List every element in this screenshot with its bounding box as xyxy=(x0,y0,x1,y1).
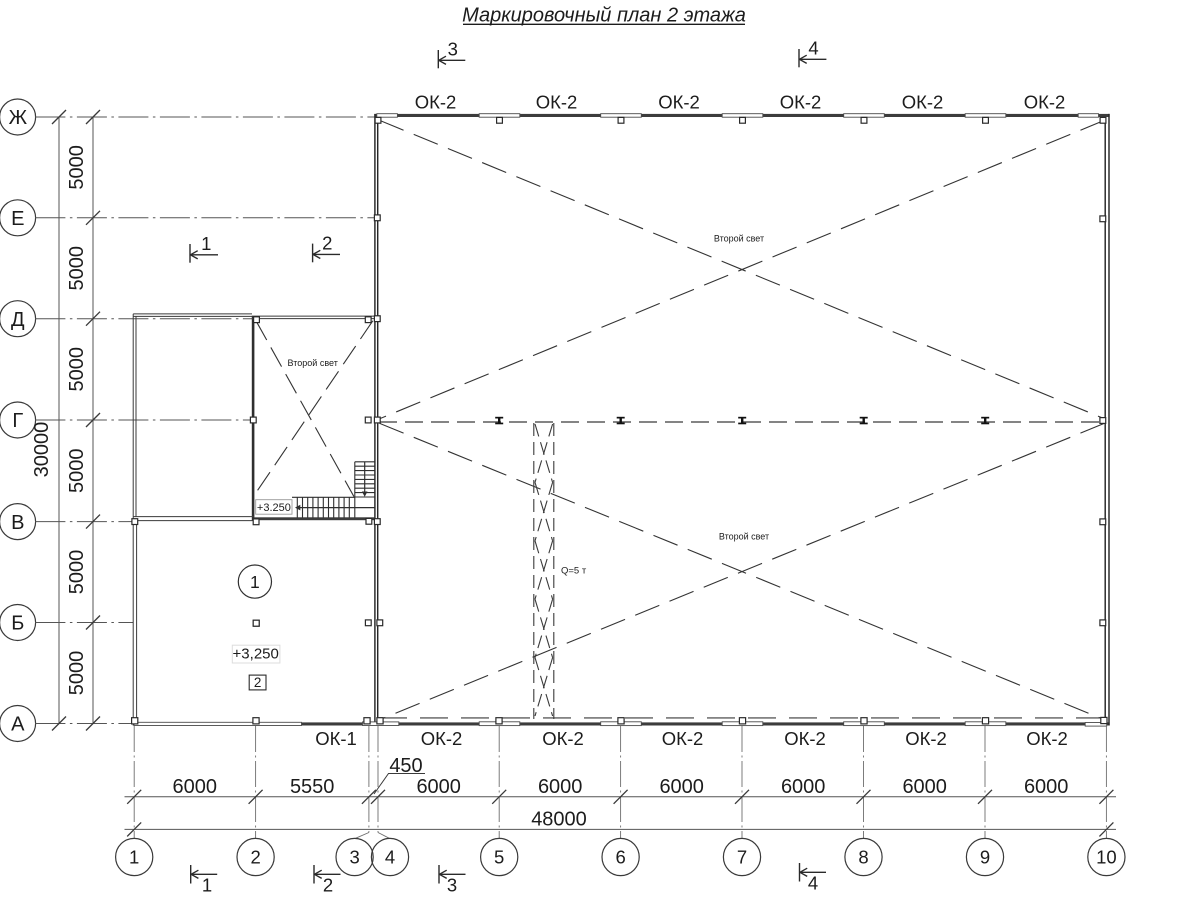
svg-text:ОК-2: ОК-2 xyxy=(902,91,944,112)
svg-text:1: 1 xyxy=(201,233,211,254)
svg-text:В: В xyxy=(11,512,24,534)
svg-text:1: 1 xyxy=(250,572,260,592)
svg-text:7: 7 xyxy=(737,847,747,868)
svg-text:2: 2 xyxy=(254,675,262,690)
svg-text:ОК-1: ОК-1 xyxy=(315,728,357,749)
svg-text:5: 5 xyxy=(494,847,504,868)
svg-text:1: 1 xyxy=(129,847,139,868)
svg-text:5000: 5000 xyxy=(66,347,88,392)
svg-text:3: 3 xyxy=(448,38,458,59)
svg-text:3: 3 xyxy=(447,875,457,896)
svg-text:4: 4 xyxy=(385,847,395,868)
svg-text:ОК-2: ОК-2 xyxy=(1026,728,1068,749)
svg-text:5550: 5550 xyxy=(290,776,335,798)
svg-text:3: 3 xyxy=(349,847,359,868)
svg-text:ОК-2: ОК-2 xyxy=(658,91,700,112)
svg-text:48000: 48000 xyxy=(531,809,587,831)
svg-text:4: 4 xyxy=(808,873,818,894)
svg-text:Б: Б xyxy=(11,613,24,635)
svg-text:10: 10 xyxy=(1096,847,1117,868)
svg-text:Q=5 т: Q=5 т xyxy=(561,566,587,577)
svg-text:30000: 30000 xyxy=(31,422,53,478)
svg-text:5000: 5000 xyxy=(66,145,88,190)
svg-text:5000: 5000 xyxy=(66,449,88,494)
svg-text:2: 2 xyxy=(322,232,332,253)
svg-text:ОК-2: ОК-2 xyxy=(905,728,947,749)
svg-text:1: 1 xyxy=(202,875,212,896)
svg-text:6000: 6000 xyxy=(416,776,461,798)
svg-text:ОК-2: ОК-2 xyxy=(1024,91,1066,112)
svg-text:Д: Д xyxy=(11,309,25,331)
svg-text:6000: 6000 xyxy=(659,776,704,798)
svg-text:8: 8 xyxy=(858,847,868,868)
svg-text:6000: 6000 xyxy=(781,776,826,798)
svg-text:6000: 6000 xyxy=(538,776,583,798)
svg-text:6000: 6000 xyxy=(1024,776,1069,798)
svg-text:ОК-2: ОК-2 xyxy=(662,728,704,749)
svg-text:ОК-2: ОК-2 xyxy=(780,91,822,112)
svg-text:5000: 5000 xyxy=(66,246,88,291)
svg-text:Ж: Ж xyxy=(9,107,28,129)
svg-text:6: 6 xyxy=(615,847,625,868)
svg-text:6000: 6000 xyxy=(902,776,947,798)
svg-text:Г: Г xyxy=(12,410,23,432)
svg-text:Маркировочный план 2 этажа: Маркировочный план 2 этажа xyxy=(462,5,746,27)
svg-text:5000: 5000 xyxy=(66,651,88,696)
svg-text:2: 2 xyxy=(250,847,260,868)
svg-text:ОК-2: ОК-2 xyxy=(421,728,463,749)
svg-text:Е: Е xyxy=(11,208,24,230)
svg-text:5000: 5000 xyxy=(66,550,88,595)
svg-text:ОК-2: ОК-2 xyxy=(415,91,457,112)
svg-text:А: А xyxy=(11,714,25,736)
svg-text:9: 9 xyxy=(980,847,990,868)
svg-text:6000: 6000 xyxy=(173,776,218,798)
svg-text:+3.250: +3.250 xyxy=(257,502,291,514)
svg-text:+3,250: +3,250 xyxy=(233,645,279,662)
svg-text:ОК-2: ОК-2 xyxy=(536,91,578,112)
svg-text:Второй свет: Второй свет xyxy=(288,358,338,368)
svg-text:Второй свет: Второй свет xyxy=(714,233,764,243)
svg-text:ОК-2: ОК-2 xyxy=(542,728,584,749)
svg-text:ОК-2: ОК-2 xyxy=(784,728,826,749)
svg-text:Второй свет: Второй свет xyxy=(719,532,769,542)
svg-text:2: 2 xyxy=(323,875,333,896)
svg-text:4: 4 xyxy=(808,38,818,59)
